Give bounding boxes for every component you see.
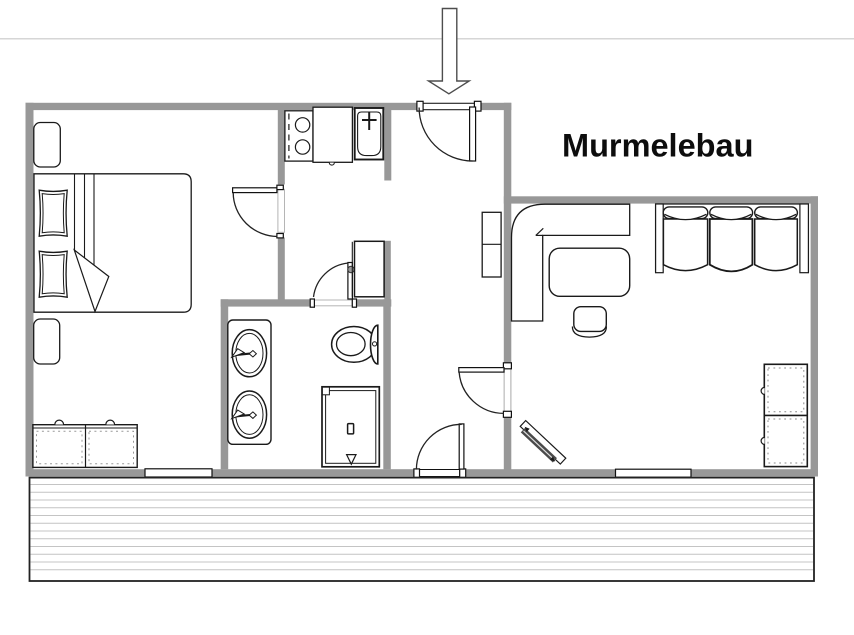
svg-text:Murmelebau: Murmelebau	[562, 128, 753, 164]
